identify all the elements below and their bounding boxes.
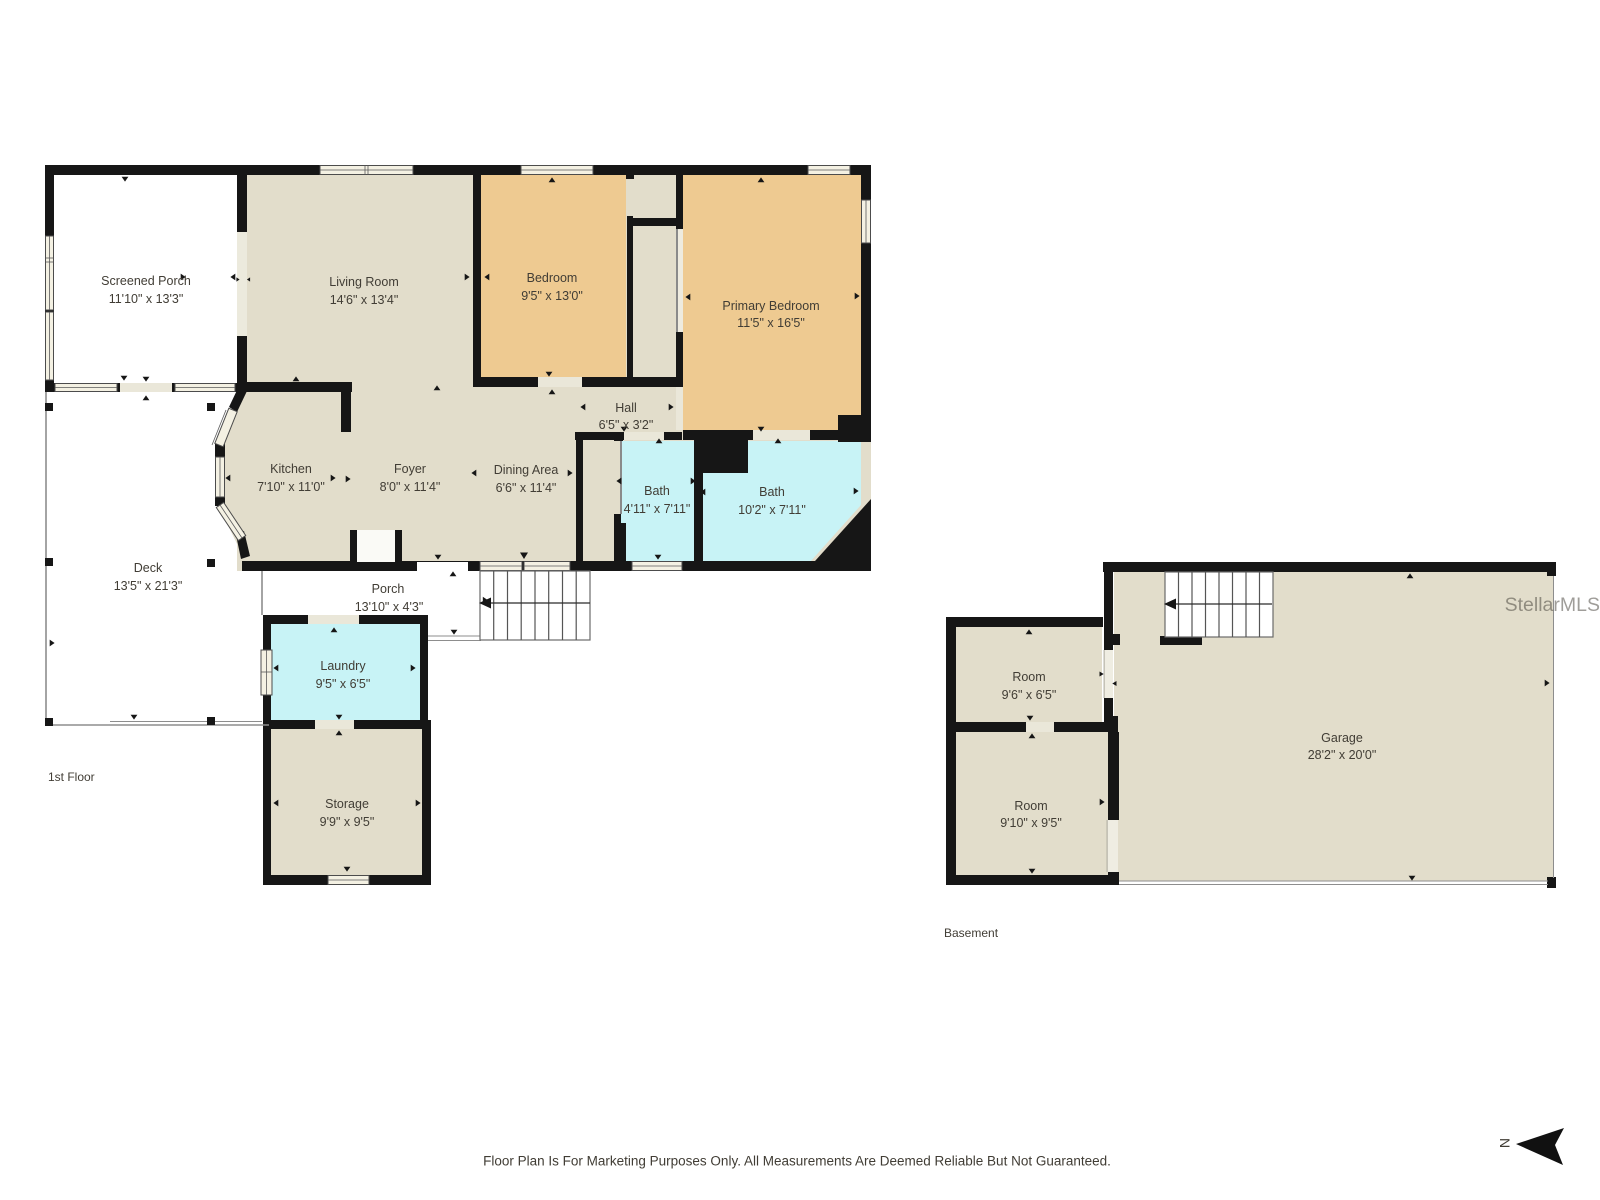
svg-text:N: N — [1497, 1138, 1513, 1148]
svg-text:6'6" x 11'4": 6'6" x 11'4" — [496, 481, 557, 495]
svg-text:28'2" x 20'0": 28'2" x 20'0" — [1308, 748, 1377, 762]
svg-text:Bedroom: Bedroom — [527, 271, 578, 285]
svg-text:14'6" x 13'4": 14'6" x 13'4" — [330, 293, 399, 307]
svg-text:Kitchen: Kitchen — [270, 462, 312, 476]
svg-text:10'2" x 7'11": 10'2" x 7'11" — [738, 503, 806, 517]
svg-text:1st Floor: 1st Floor — [48, 770, 95, 784]
svg-text:Room: Room — [1012, 670, 1045, 684]
svg-text:13'5" x 21'3": 13'5" x 21'3" — [114, 579, 183, 593]
svg-text:Basement: Basement — [944, 926, 999, 940]
svg-text:6'5" x 3'2": 6'5" x 3'2" — [599, 418, 654, 432]
svg-text:Room: Room — [1014, 799, 1047, 813]
svg-text:Garage: Garage — [1321, 731, 1363, 745]
svg-text:13'10" x 4'3": 13'10" x 4'3" — [355, 600, 424, 614]
svg-text:Floor Plan Is For Marketing Pu: Floor Plan Is For Marketing Purposes Onl… — [483, 1154, 1111, 1169]
svg-text:Foyer: Foyer — [394, 462, 426, 476]
svg-text:Storage: Storage — [325, 797, 369, 811]
svg-text:Porch: Porch — [372, 582, 405, 596]
svg-text:Hall: Hall — [615, 401, 637, 415]
svg-text:8'0" x 11'4": 8'0" x 11'4" — [380, 480, 441, 494]
svg-text:7'10" x 11'0": 7'10" x 11'0" — [257, 480, 325, 494]
svg-text:9'5" x 6'5": 9'5" x 6'5" — [316, 677, 371, 691]
svg-text:Deck: Deck — [134, 561, 163, 575]
svg-text:9'6" x 6'5": 9'6" x 6'5" — [1002, 688, 1057, 702]
svg-text:Living Room: Living Room — [329, 275, 398, 289]
svg-text:Primary Bedroom: Primary Bedroom — [722, 299, 819, 313]
svg-text:Bath: Bath — [759, 485, 785, 499]
svg-text:Dining Area: Dining Area — [494, 463, 559, 477]
svg-text:StellarMLS: StellarMLS — [1505, 594, 1600, 616]
svg-text:11'10" x 13'3": 11'10" x 13'3" — [109, 292, 184, 306]
svg-text:9'5" x 13'0": 9'5" x 13'0" — [521, 289, 583, 303]
svg-text:Laundry: Laundry — [320, 659, 366, 673]
svg-text:9'9" x 9'5": 9'9" x 9'5" — [320, 815, 375, 829]
svg-text:9'10" x 9'5": 9'10" x 9'5" — [1000, 816, 1062, 830]
svg-text:11'5" x 16'5": 11'5" x 16'5" — [737, 316, 805, 330]
svg-text:Bath: Bath — [644, 484, 670, 498]
svg-text:Screened Porch: Screened Porch — [101, 274, 191, 288]
svg-text:4'11" x 7'11": 4'11" x 7'11" — [624, 502, 691, 516]
